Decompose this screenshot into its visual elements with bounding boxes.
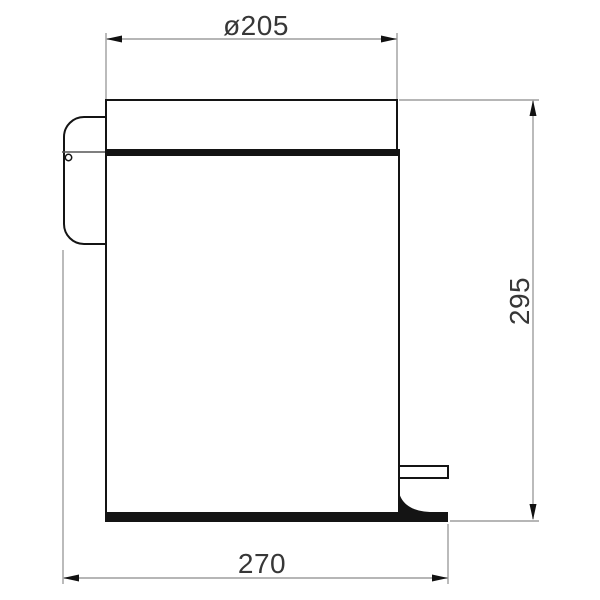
dimension-label-width: 270 xyxy=(238,548,286,579)
arrowhead-up-icon xyxy=(530,100,537,116)
lid-rim-band xyxy=(105,149,400,156)
dimension-label-diameter: ø205 xyxy=(223,10,289,41)
base-plate xyxy=(105,513,448,522)
arrowhead-right-icon xyxy=(381,36,397,43)
technical-drawing-canvas: ø205 295 270 xyxy=(0,0,600,600)
bin-body xyxy=(106,155,399,513)
hinge-pin-hole xyxy=(65,154,71,160)
hinge-bracket xyxy=(64,117,106,244)
bin-lid xyxy=(106,100,397,150)
arrowhead-down-icon xyxy=(530,504,537,520)
dimension-label-height: 295 xyxy=(504,277,535,325)
arrowhead-left-icon xyxy=(63,575,79,582)
arrowhead-right-icon xyxy=(432,575,448,582)
foot-pedal xyxy=(399,466,448,478)
arrowhead-left-icon xyxy=(106,36,122,43)
pedal-bin-drawing: ø205 295 270 xyxy=(0,0,600,600)
